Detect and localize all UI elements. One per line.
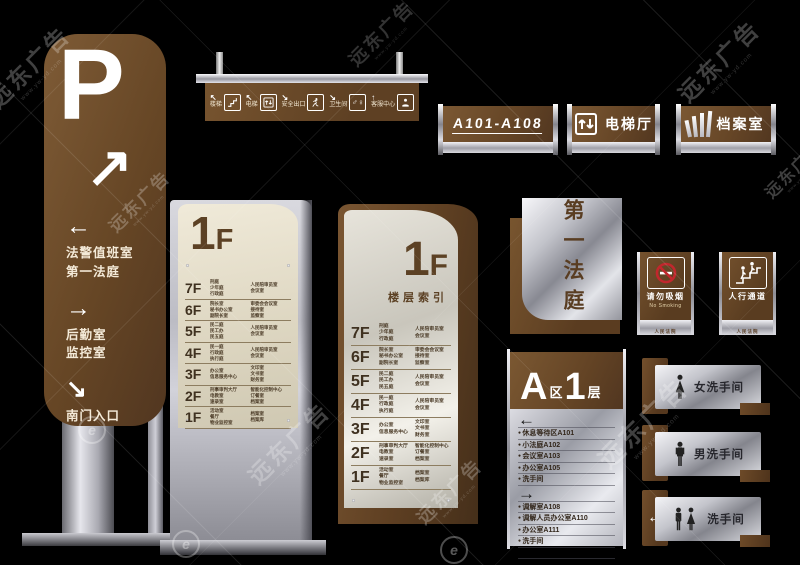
sign-strip: 人民法院 — [640, 320, 691, 335]
walkway-icon — [729, 257, 767, 289]
plate-strip — [681, 142, 771, 153]
totem-base — [160, 540, 326, 555]
floor-rooms-right: 档案室 档案库 — [251, 411, 292, 423]
zone-left-items: 休息等待区A101小法庭A102会议室A103办公室A105洗手间 — [518, 428, 615, 486]
floor-label: 5F — [351, 373, 379, 391]
floor-label: 4F — [185, 345, 210, 361]
floor-row: 3F 办公室 信息服务中心 文印室 文书室 财务室 — [185, 364, 291, 386]
left-arrow-icon: ← — [518, 412, 615, 428]
brown-corner — [740, 535, 770, 547]
zone-room-item: 洗手间 — [518, 536, 615, 548]
womens-restroom-sign: 女洗手间 — [640, 356, 772, 418]
item-label: 电梯 — [246, 102, 258, 109]
watermark-logo-icon: e — [440, 536, 468, 564]
floor-rooms-left: 刑事审判大厅 电教室 速录室 — [210, 387, 251, 405]
restroom-label: 女洗手间 — [694, 379, 744, 395]
no-smoking-icon — [647, 257, 685, 289]
sign-body: 人行通道 — [722, 252, 773, 320]
floor-suffix: F — [216, 224, 234, 256]
zone-room-item: 会议室A103 — [518, 451, 615, 463]
floor-rooms-right: 人民陪审员室 会议室 — [415, 327, 451, 340]
right-arrow-icon: → — [518, 486, 615, 502]
floor-rooms-right: 审委会会议室 接待室 监察室 — [251, 301, 292, 319]
watermark-url: www.yw-yd.com — [693, 35, 771, 113]
item-label: 安全出口 — [281, 102, 305, 109]
direction-arrow-icon: → — [66, 296, 162, 321]
floor-rows: 7F 刑庭 少年庭 行政庭 人民陪审员室 会议室 6F 院长室 秘书办公室 副院… — [351, 322, 451, 490]
item-label: 卫生间 — [329, 102, 347, 109]
floor-row: 2F 刑事审判大厅 电教室 速录室 智能化控制中心 订餐室 档案室 — [351, 442, 451, 466]
sign-edge — [773, 252, 776, 335]
floor-label: 5F — [185, 323, 210, 339]
floor-rooms-left: 活动室 餐厅 物业监控室 — [379, 468, 415, 487]
floor-index-panel: 1F 楼层索引 7F 刑庭 少年庭 行政庭 人民陪审员室 会议室 6F 院长室 … — [344, 210, 458, 508]
floor-rooms-right: 文印室 文书室 财务室 — [415, 420, 451, 439]
floor-label: 3F — [351, 421, 379, 439]
destination-group: ← 法警值班室 第一法庭 — [66, 214, 162, 282]
sign-title: 人行通道 — [722, 291, 773, 302]
floor-row: 4F 民一庭 行政庭 执行庭 人民陪审员室 会议室 — [351, 394, 451, 418]
brown-corner — [740, 403, 770, 415]
floor-label: 1F — [185, 409, 210, 425]
ruled-line — [518, 559, 615, 565]
zone-right-items: 调解室A108调解人员办公室A110办公室A111洗手间 — [518, 502, 615, 548]
hanging-item-exit: ↘ 安全出口 — [281, 94, 324, 111]
up-right-arrow-icon: ↗ — [86, 134, 133, 200]
floor-rooms-left: 刑庭 少年庭 行政庭 — [210, 279, 251, 297]
floor-row: 7F 刑庭 少年庭 行政庭 人民陪审员室 会议室 — [185, 278, 291, 300]
archive-icon — [688, 111, 710, 137]
zone-room-item: 办公室A111 — [518, 525, 615, 537]
plate-edge — [771, 104, 776, 155]
floor-rooms-right: 人民陪审员室 会议室 — [251, 347, 292, 359]
plate-strip — [443, 142, 553, 153]
destination-group: ↘ 南门入口 — [66, 377, 162, 426]
plate-strip — [572, 142, 655, 153]
destination-label: 后勤室 监控室 — [66, 326, 162, 364]
floor-label: 4F — [351, 397, 379, 415]
floor-label: 7F — [185, 280, 210, 296]
floor-row: 2F 刑事审判大厅 电教室 速录室 智能化控制中心 订餐室 档案室 — [185, 386, 291, 408]
floor-suffix: F — [430, 249, 448, 282]
floor-label: 6F — [351, 349, 379, 367]
floor-rooms-right: 人民陪审员室 会议室 — [415, 399, 451, 412]
direction-arrow-icon: ← — [66, 214, 162, 239]
direction-arrow-icon: ↘ — [66, 377, 162, 402]
screw-icon — [447, 499, 450, 502]
plate-label: 电梯厅 — [605, 114, 653, 134]
floor-rooms-right: 人民陪审员室 会议室 — [251, 282, 292, 294]
item-label: 楼梯 — [210, 102, 222, 109]
elevator-icon — [260, 94, 277, 111]
hanger-bar — [196, 74, 428, 83]
plate-body: A101-A108 — [443, 106, 553, 142]
plate-label: 档案室 — [717, 114, 765, 134]
zone-floor-suffix: 层 — [588, 382, 601, 401]
floor-row: 1F 活动室 餐厅 物业监控室 档案室 档案库 — [185, 407, 291, 429]
hanging-item-elevator: ↖ 电梯 — [246, 94, 277, 111]
screw-icon — [287, 264, 290, 267]
parking-panel: P ↗ ← 法警值班室 第一法庭 → 后勤室 监控室 ↘ — [44, 34, 166, 426]
zone-directory-sign: A 区 1 层 ← 休息等待区A101小法庭A102会议室A103办公室A105… — [507, 349, 626, 549]
hanging-item-service: ↑ 客服中心 — [371, 94, 414, 111]
floor-row: 5F 民二庭 民工办 民五庭 人民陪审员室 会议室 — [351, 370, 451, 394]
walkway-sign: 人行通道 人民法院 — [719, 252, 776, 335]
watermark-url: www.yw-yd.com — [775, 151, 800, 205]
floor-row: 6F 院长室 秘书办公室 副院长室 审委会会议室 接待室 监察室 — [351, 346, 451, 370]
zone-room-item: 休息等待区A101 — [518, 428, 615, 440]
plate-body: 档案室 — [681, 106, 771, 142]
floor-label: 1F — [351, 469, 379, 487]
zone-floor-number: 1 — [564, 371, 585, 403]
watermark: 远东广告www.yw-yd.com — [669, 11, 771, 113]
floor-rooms-right: 文印室 文书室 财务室 — [251, 365, 292, 383]
exit-icon — [307, 94, 324, 111]
floor-rooms-right: 智能化控制中心 订餐室 档案室 — [415, 444, 451, 463]
floor-rooms-right: 人民陪审员室 会议室 — [251, 325, 292, 337]
zone-room-item: 小法庭A102 — [518, 440, 615, 452]
stairs-icon — [224, 94, 241, 111]
destination-label: 南门入口 — [66, 407, 162, 426]
floor-rooms-left: 民一庭 行政庭 执行庭 — [379, 396, 415, 415]
strip-text: 人民法院 — [655, 329, 677, 334]
floor-label: 3F — [185, 366, 210, 382]
floor-rooms-left: 办公室 信息服务中心 — [379, 423, 415, 436]
mens-restroom-sign: 男洗手间 — [640, 423, 772, 485]
no-smoking-sign: 请勿吸烟 No Smoking 人民法院 — [637, 252, 694, 335]
floor-rooms-right: 档案室 档案库 — [415, 471, 451, 484]
floor-row: 4F 民一庭 行政庭 执行庭 人民陪审员室 会议室 — [185, 343, 291, 365]
floor-label: 7F — [351, 325, 379, 343]
floor-row: 5F 民二庭 民工办 民五庭 人民陪审员室 会议室 — [185, 321, 291, 343]
zone-room-item: 调解室A108 — [518, 502, 615, 514]
sign-subtitle-en — [722, 303, 773, 309]
room-range-label: A101-A108 — [452, 115, 544, 134]
zone-room-item: 调解人员办公室A110 — [518, 513, 615, 525]
zone-suffix: 区 — [549, 382, 562, 401]
woman-icon — [672, 372, 688, 402]
signage-mockup-canvas: P ↗ ← 法警值班室 第一法庭 → 后勤室 监控室 ↘ — [0, 0, 800, 565]
floor-title: 1F — [190, 206, 233, 260]
plate-edge — [553, 104, 558, 155]
destination-list: ← 法警值班室 第一法庭 → 后勤室 监控室 ↘ 南门入口 — [66, 214, 162, 440]
man-woman-icon — [671, 504, 701, 534]
item-label: 客服中心 — [371, 102, 395, 109]
sign-edge — [623, 349, 626, 549]
metal-plate: 第一法庭 — [522, 198, 622, 320]
ruled-line — [518, 548, 615, 560]
floor-title: 1F 楼层索引 — [388, 232, 448, 305]
floor-rooms-right: 人民陪审员室 会议室 — [415, 375, 451, 388]
screw-icon — [352, 499, 355, 502]
floor-rooms-left: 民二庭 民工办 民五庭 — [210, 322, 251, 340]
door-plate-rooms: A101-A108 — [438, 106, 558, 153]
floor-index-subtitle: 楼层索引 — [388, 289, 448, 305]
destination-group: → 后勤室 监控室 — [66, 296, 162, 364]
plate-body: 电梯厅 — [572, 106, 655, 142]
floor-row: 6F 院长室 秘书办公室 副院长室 审委会会议室 接待室 监察室 — [185, 300, 291, 322]
floor-row: 3F 办公室 信息服务中心 文印室 文书室 财务室 — [351, 418, 451, 442]
watermark-text: 远东广告 — [669, 11, 767, 109]
door-plate-archive: 档案室 — [676, 106, 776, 153]
sign-body: 请勿吸烟 No Smoking — [640, 252, 691, 320]
zone-body: ← 休息等待区A101小法庭A102会议室A103办公室A105洗手间 → 调解… — [510, 409, 623, 546]
floor-rooms-right: 审委会会议室 接待室 监察室 — [415, 348, 451, 367]
floor-rooms-left: 刑庭 少年庭 行政庭 — [379, 324, 415, 343]
toilet-icon: ♂♀ — [349, 94, 366, 111]
sign-title: 请勿吸烟 — [640, 291, 691, 302]
floor-rooms-left: 民二庭 民工办 民五庭 — [379, 372, 415, 391]
floor-rooms-right: 智能化控制中心 订餐室 档案室 — [251, 387, 292, 405]
floor-rows: 7F 刑庭 少年庭 行政庭 人民陪审员室 会议室 6F 院长室 秘书办公室 副院… — [185, 278, 291, 429]
floor-number: 1 — [403, 233, 430, 286]
zone-header: A 区 1 层 — [510, 352, 623, 409]
floor-rooms-left: 民一庭 行政庭 执行庭 — [210, 344, 251, 362]
hanging-item-toilet: ↘ 卫生间 ♂♀ — [329, 94, 366, 111]
courtroom-name: 第一法庭 — [557, 199, 587, 319]
plate-edge — [655, 104, 660, 155]
floor-label: 2F — [185, 388, 210, 404]
courtroom-sign: 第一法庭 — [508, 198, 626, 336]
service-icon — [397, 94, 414, 111]
floor-row: 7F 刑庭 少年庭 行政庭 人民陪审员室 会议室 — [351, 322, 451, 346]
strip-text: 人民法院 — [737, 329, 759, 334]
restroom-label: 洗手间 — [707, 511, 745, 527]
restroom-sign: ← 洗手间 — [640, 488, 772, 550]
zone-letter: A — [520, 371, 547, 403]
floor-label: 6F — [185, 302, 210, 318]
sign-subtitle-en: No Smoking — [640, 303, 691, 309]
man-icon — [672, 439, 688, 469]
floor-rooms-left: 院长室 秘书办公室 副院长室 — [379, 348, 415, 367]
screw-icon — [186, 264, 189, 267]
elevator-icon — [574, 112, 598, 136]
sign-strip: 人民法院 — [722, 320, 773, 335]
sign-edge — [691, 252, 694, 335]
floor-index-totem-left: 1F 7F 刑庭 少年庭 行政庭 人民陪审员室 会议室 6F 院长室 秘书办公室… — [166, 192, 318, 564]
floor-rooms-left: 办公室 信息服务中心 — [210, 368, 251, 380]
brown-corner — [740, 470, 770, 482]
floor-row: 1F 活动室 餐厅 物业监控室 档案室 档案库 — [351, 466, 451, 490]
door-plate-elevator-hall: 电梯厅 — [567, 106, 660, 153]
floor-rooms-left: 刑事审判大厅 电教室 速录室 — [379, 444, 415, 463]
floor-number: 1 — [190, 207, 216, 259]
floor-index-totem-right: 1F 楼层索引 7F 刑庭 少年庭 行政庭 人民陪审员室 会议室 6F 院长室 … — [330, 198, 482, 528]
floor-rooms-left: 活动室 餐厅 物业监控室 — [210, 408, 251, 426]
floor-label: 2F — [351, 445, 379, 463]
floor-rooms-left: 院长室 秘书办公室 副院长室 — [210, 301, 251, 319]
restroom-label: 男洗手间 — [694, 446, 744, 462]
hanging-item-stairs: ↖ 楼梯 — [210, 94, 241, 111]
zone-room-item: 办公室A105 — [518, 463, 615, 475]
destination-label: 法警值班室 第一法庭 — [66, 244, 162, 282]
hanging-direction-sign: ↖ 楼梯 ↖ 电梯 ↘ 安全出口 ↘ 卫生间 ♂♀ ↑ 客服中心 — [196, 52, 428, 124]
floor-index-panel: 1F 7F 刑庭 少年庭 行政庭 人民陪审员室 会议室 6F 院长室 秘书办公室… — [178, 204, 298, 428]
parking-letter: P — [58, 28, 125, 143]
hanging-panel: ↖ 楼梯 ↖ 电梯 ↘ 安全出口 ↘ 卫生间 ♂♀ ↑ 客服中心 — [205, 83, 419, 121]
